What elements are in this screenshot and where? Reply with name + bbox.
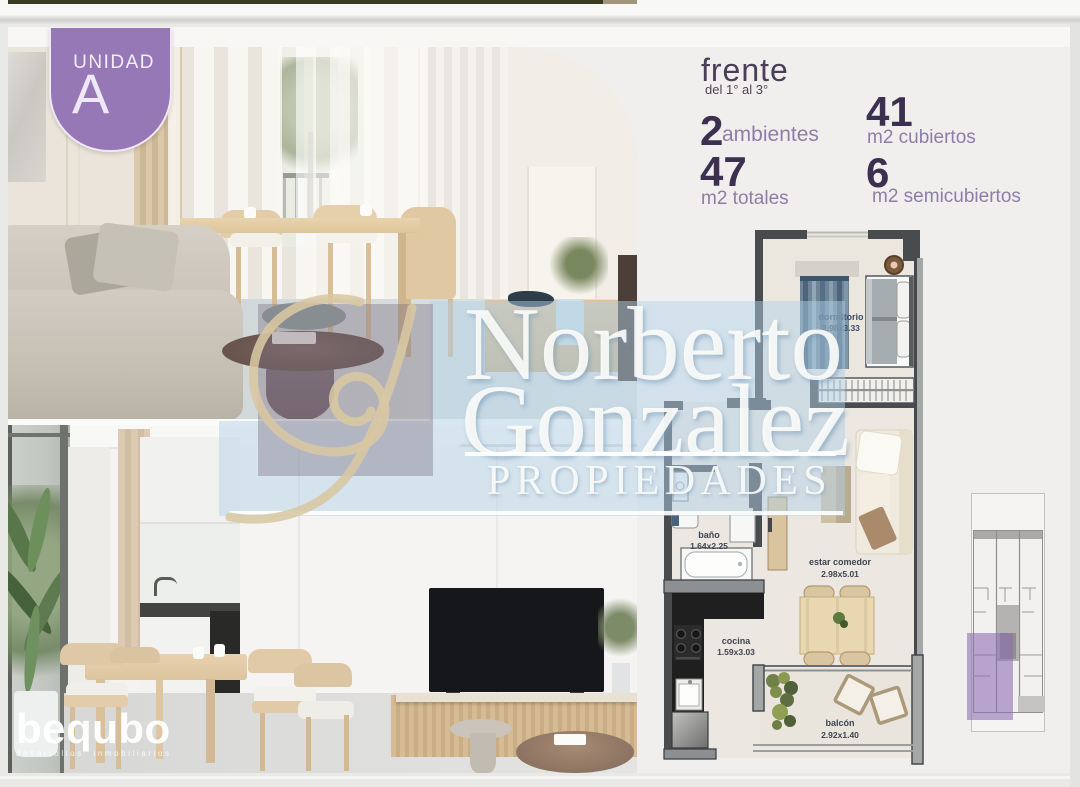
svg-text:estar comedor: estar comedor	[809, 557, 872, 567]
svg-text:1.59x3.03: 1.59x3.03	[717, 647, 755, 657]
svg-text:cocina: cocina	[722, 636, 752, 646]
svg-text:baño: baño	[698, 530, 720, 540]
svg-text:1.64x2.25: 1.64x2.25	[690, 541, 728, 551]
svg-text:2.92x1.40: 2.92x1.40	[821, 730, 859, 740]
svg-text:balcón: balcón	[825, 718, 854, 728]
svg-text:2.98x5.01: 2.98x5.01	[821, 569, 859, 579]
